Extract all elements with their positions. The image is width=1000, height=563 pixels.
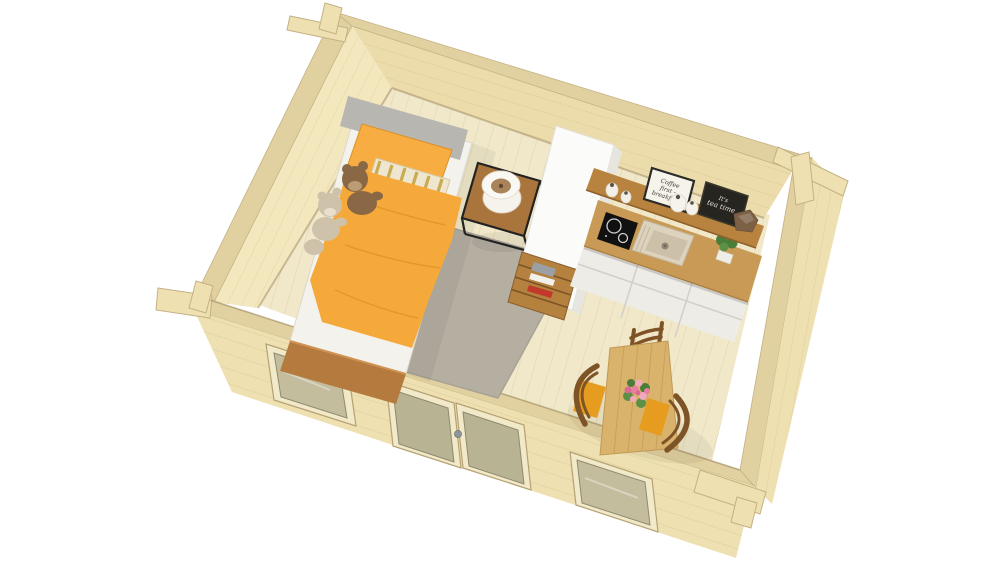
door-handle [455,431,462,438]
table-lamp [482,171,521,213]
dining-table [600,341,678,455]
cabin-render-canvas: Coffee first - breakfast It's tea time [0,0,1000,563]
cabin-3d-render: Coffee first - breakfast It's tea time [0,0,1000,563]
